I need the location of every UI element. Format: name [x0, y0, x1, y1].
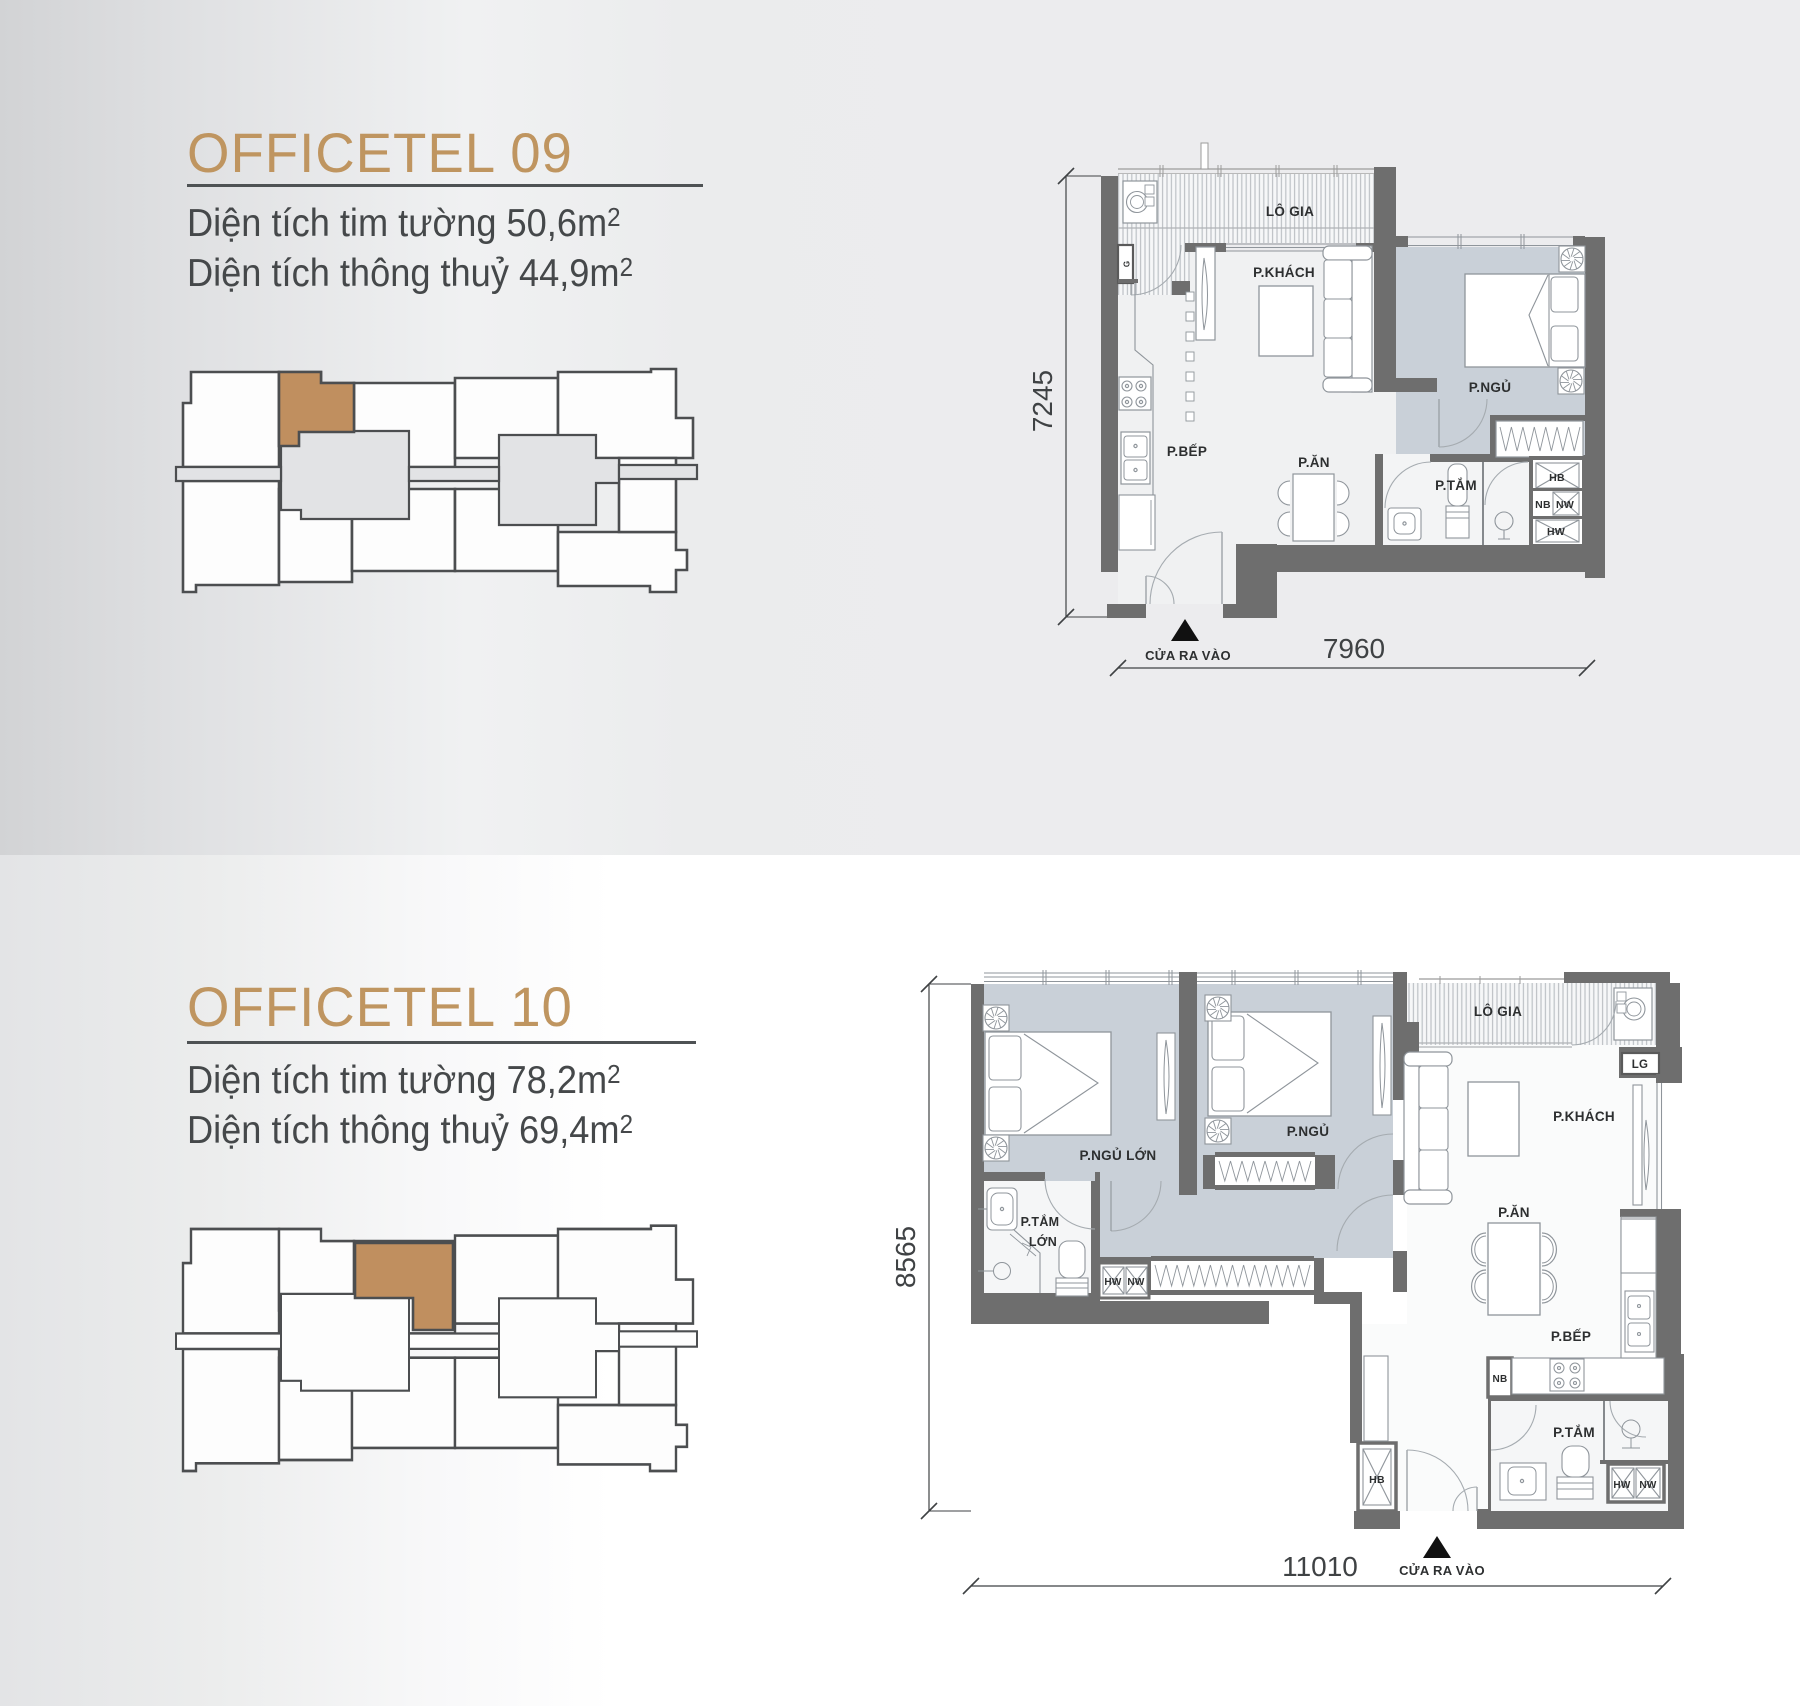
- svg-text:P.BẾP: P.BẾP: [1551, 1329, 1591, 1344]
- svg-text:HB: HB: [1369, 1474, 1385, 1486]
- svg-text:NB: NB: [1492, 1374, 1507, 1385]
- svg-text:NW: NW: [1639, 1480, 1657, 1491]
- svg-text:7245: 7245: [1027, 370, 1058, 432]
- svg-text:P.NGỦ LỚN: P.NGỦ LỚN: [1080, 1148, 1157, 1163]
- svg-text:P.NGỦ: P.NGỦ: [1287, 1124, 1330, 1139]
- svg-text:G: G: [1123, 261, 1132, 267]
- svg-text:LÔ GIA: LÔ GIA: [1266, 204, 1314, 219]
- svg-text:HW: HW: [1613, 1480, 1631, 1491]
- svg-text:HW: HW: [1104, 1277, 1122, 1288]
- svg-text:7960: 7960: [1323, 633, 1385, 664]
- svg-text:LỚN: LỚN: [1029, 1234, 1057, 1249]
- svg-text:P.KHÁCH: P.KHÁCH: [1553, 1109, 1615, 1124]
- svg-text:P.NGỦ: P.NGỦ: [1469, 380, 1512, 395]
- svg-text:NB: NB: [1535, 499, 1551, 511]
- svg-text:P.ĂN: P.ĂN: [1298, 455, 1330, 470]
- svg-text:11010: 11010: [1282, 1551, 1358, 1582]
- svg-text:LG: LG: [1632, 1059, 1649, 1071]
- svg-text:P.TẮM: P.TẮM: [1435, 478, 1477, 493]
- svg-text:P.BẾP: P.BẾP: [1167, 444, 1207, 459]
- svg-text:NW: NW: [1127, 1277, 1145, 1288]
- svg-text:P.KHÁCH: P.KHÁCH: [1253, 265, 1315, 280]
- svg-text:P.TẮM: P.TẮM: [1021, 1214, 1060, 1229]
- svg-text:8565: 8565: [890, 1226, 921, 1288]
- svg-text:HW: HW: [1547, 526, 1565, 538]
- svg-text:LÔ GIA: LÔ GIA: [1474, 1004, 1522, 1019]
- svg-text:P.TẮM: P.TẮM: [1553, 1425, 1595, 1440]
- svg-text:CỬA RA VÀO: CỬA RA VÀO: [1399, 1563, 1485, 1578]
- svg-text:CỬA RA VÀO: CỬA RA VÀO: [1145, 648, 1231, 663]
- svg-text:P.ĂN: P.ĂN: [1498, 1205, 1530, 1220]
- svg-text:HB: HB: [1549, 472, 1565, 484]
- svg-text:NW: NW: [1556, 499, 1574, 511]
